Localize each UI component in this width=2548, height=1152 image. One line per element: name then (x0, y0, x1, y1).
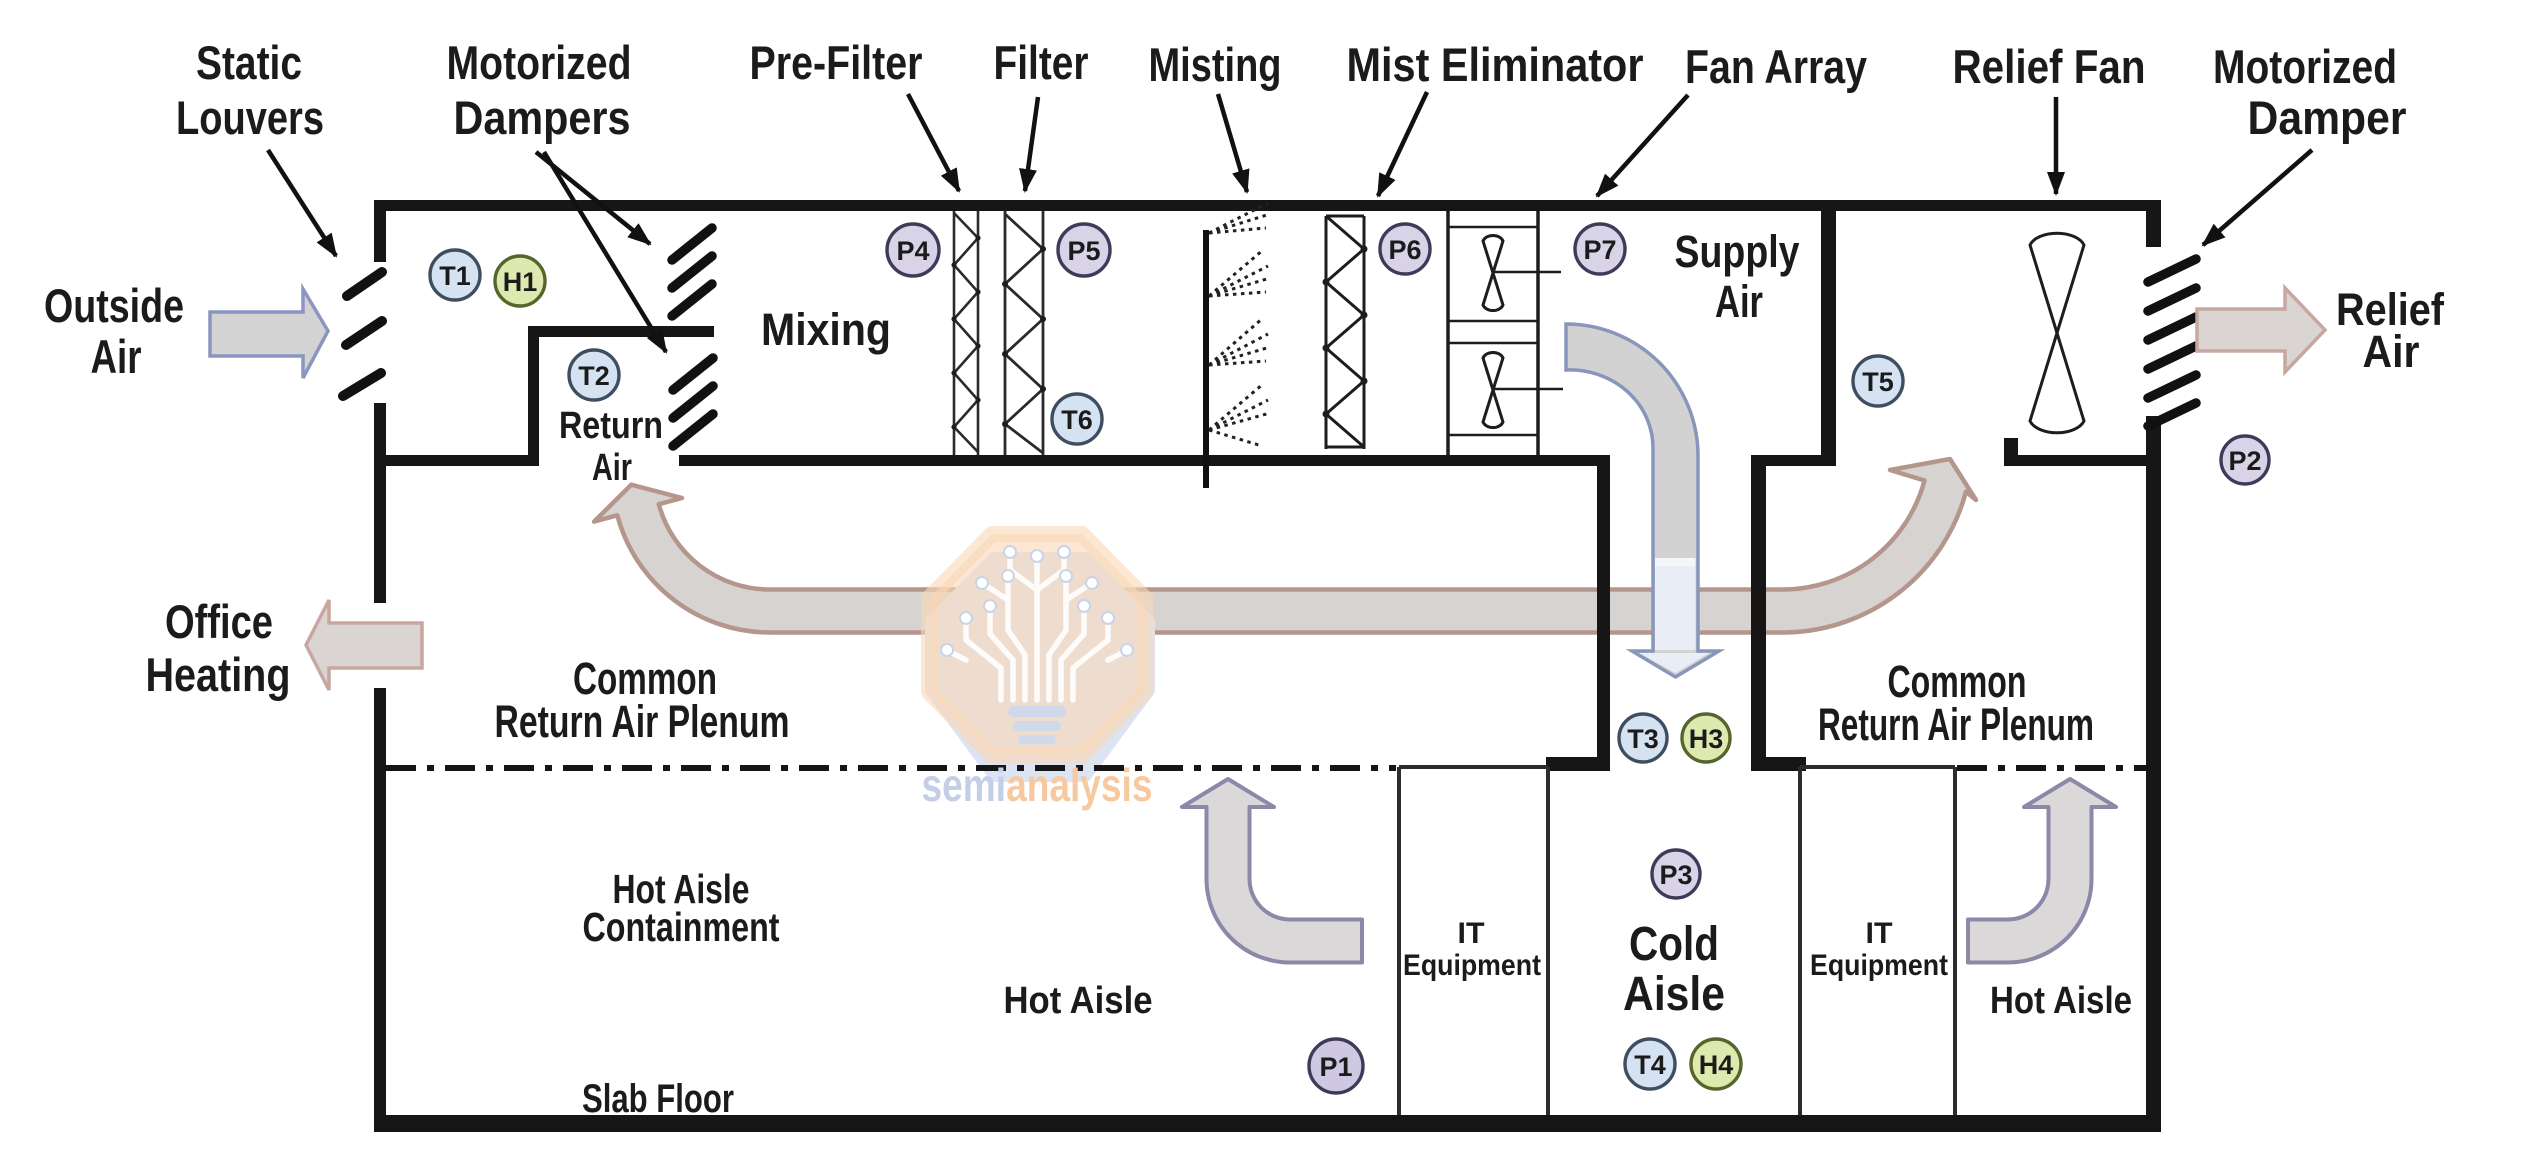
svg-text:Misting: Misting (1149, 38, 1282, 91)
svg-text:Office: Office (165, 595, 273, 648)
svg-text:P5: P5 (1067, 236, 1100, 266)
svg-text:Mixing: Mixing (761, 304, 891, 355)
svg-text:H4: H4 (1699, 1050, 1734, 1080)
svg-text:Return Air Plenum: Return Air Plenum (495, 696, 790, 747)
svg-text:T5: T5 (1862, 367, 1894, 397)
svg-text:Damper: Damper (2248, 91, 2407, 144)
svg-text:P2: P2 (2228, 446, 2261, 476)
svg-text:Equipment: Equipment (1403, 949, 1541, 982)
svg-text:Air: Air (592, 447, 632, 489)
svg-text:Dampers: Dampers (454, 91, 631, 144)
svg-text:Mist Eliminator: Mist Eliminator (1347, 38, 1644, 91)
svg-text:IT: IT (1866, 917, 1893, 950)
svg-text:P1: P1 (1319, 1052, 1352, 1082)
svg-text:Equipment: Equipment (1810, 949, 1948, 982)
svg-text:T2: T2 (578, 361, 610, 391)
svg-text:H1: H1 (503, 267, 538, 297)
svg-text:Slab Floor: Slab Floor (582, 1077, 734, 1121)
svg-text:Air: Air (91, 330, 142, 383)
svg-text:Fan Array: Fan Array (1685, 40, 1867, 93)
svg-text:Heating: Heating (146, 648, 291, 701)
svg-text:T1: T1 (439, 261, 471, 291)
svg-text:Air: Air (2363, 326, 2420, 377)
svg-text:P3: P3 (1659, 860, 1692, 890)
svg-text:Outside: Outside (44, 279, 184, 332)
svg-text:Hot Aisle: Hot Aisle (1990, 980, 2132, 1022)
svg-text:Louvers: Louvers (176, 91, 324, 144)
svg-text:Static: Static (196, 36, 302, 89)
svg-text:Air: Air (1715, 276, 1763, 327)
svg-text:Return: Return (559, 405, 663, 447)
svg-text:P4: P4 (896, 236, 929, 266)
svg-text:Motorized: Motorized (447, 36, 632, 89)
svg-text:Relief Fan: Relief Fan (1953, 40, 2146, 93)
svg-text:Containment: Containment (583, 904, 780, 950)
svg-text:Hot Aisle: Hot Aisle (1004, 980, 1153, 1022)
svg-text:P7: P7 (1583, 235, 1616, 265)
svg-text:P6: P6 (1388, 235, 1421, 265)
svg-text:Supply: Supply (1675, 226, 1800, 277)
svg-text:Motorized: Motorized (2213, 40, 2397, 93)
svg-text:Cold: Cold (1629, 918, 1719, 971)
svg-text:H3: H3 (1689, 724, 1724, 754)
svg-text:Filter: Filter (994, 36, 1089, 89)
svg-text:Aisle: Aisle (1623, 968, 1725, 1021)
svg-text:T6: T6 (1061, 405, 1093, 435)
svg-text:Pre-Filter: Pre-Filter (750, 36, 923, 89)
svg-text:semianalysis: semianalysis (922, 759, 1153, 811)
svg-text:T4: T4 (1634, 1050, 1666, 1080)
svg-text:T3: T3 (1627, 724, 1659, 754)
svg-text:IT: IT (1458, 917, 1485, 950)
svg-text:Return Air Plenum: Return Air Plenum (1818, 699, 2094, 750)
